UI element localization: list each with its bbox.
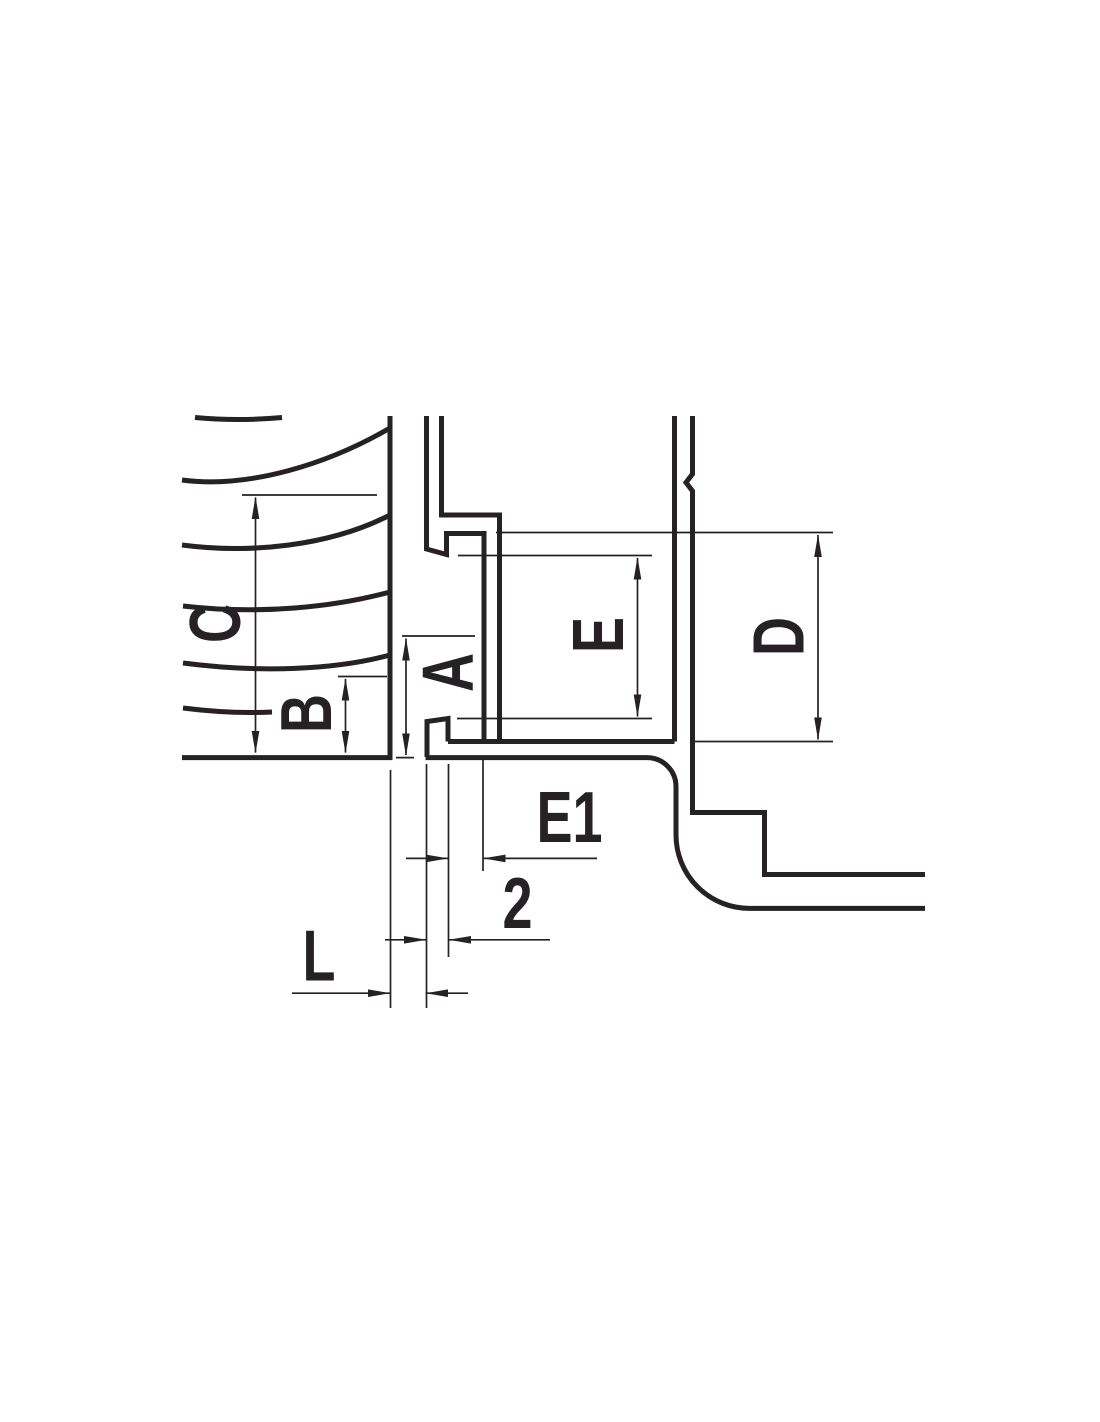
arrowheads xyxy=(252,497,822,998)
arrow-c-down xyxy=(252,731,260,754)
arrow-d-up xyxy=(814,535,822,558)
label-d: D xyxy=(739,617,819,656)
label-a: A xyxy=(408,653,488,692)
arrow-a-down xyxy=(402,734,410,757)
arrow-l-left xyxy=(426,989,449,997)
retainer-bottom-tab xyxy=(427,719,448,758)
arrow-e-up xyxy=(634,557,642,580)
arrow-e1-left xyxy=(483,855,506,863)
arrow-2-right xyxy=(404,936,427,944)
shaft-bottom-profile xyxy=(426,758,926,909)
label-e: E xyxy=(558,617,638,653)
hub-blade-curve-2 xyxy=(182,515,390,548)
label-e1: E1 xyxy=(536,777,602,857)
label-c: C xyxy=(175,604,255,643)
hub-top-arc xyxy=(195,418,282,420)
cross-section-drawing: C B A E D E1 2 L xyxy=(0,0,1100,1422)
arrow-d-down xyxy=(814,718,822,741)
arrow-e-down xyxy=(634,695,642,718)
hub-blade-curve-1 xyxy=(182,428,390,482)
arrow-e1-right xyxy=(426,855,449,863)
drawing-canvas: C B A E D E1 2 L xyxy=(0,0,1100,1422)
arrow-2-left xyxy=(449,936,472,944)
arrow-c-up xyxy=(252,497,260,520)
hub-blade-curve-5 xyxy=(183,708,272,713)
label-b: B xyxy=(266,694,346,733)
label-2: 2 xyxy=(502,863,532,943)
label-l: L xyxy=(303,916,336,996)
hub-blade-curve-4 xyxy=(183,655,390,669)
arrow-l-right xyxy=(368,989,391,997)
arrow-b-down xyxy=(342,731,350,754)
